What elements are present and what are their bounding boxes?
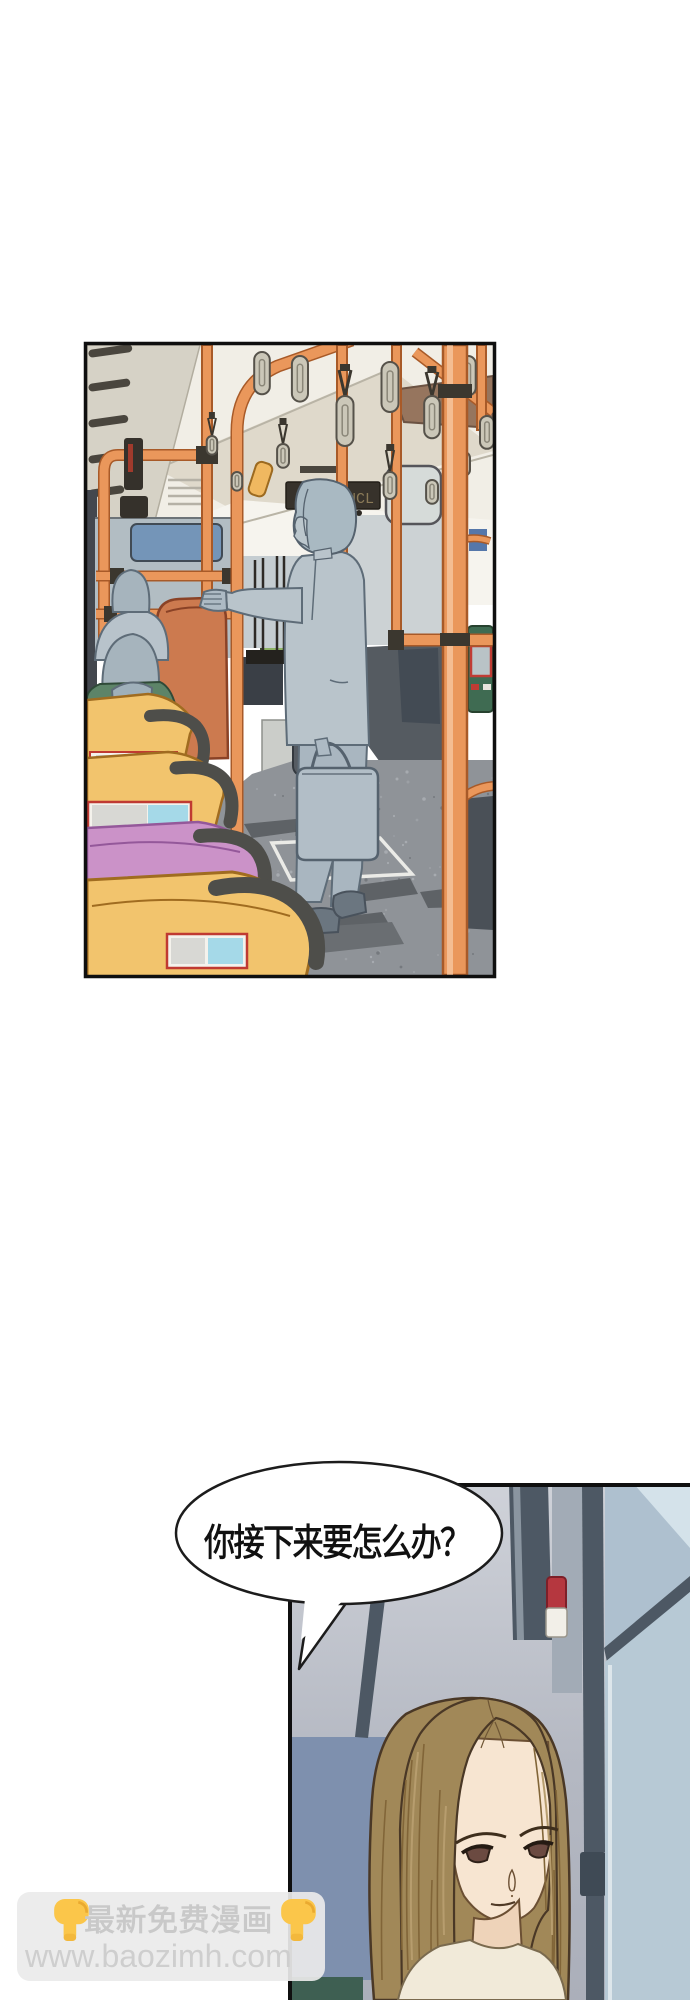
svg-text:www.baozimh.com: www.baozimh.com — [24, 1938, 292, 1974]
